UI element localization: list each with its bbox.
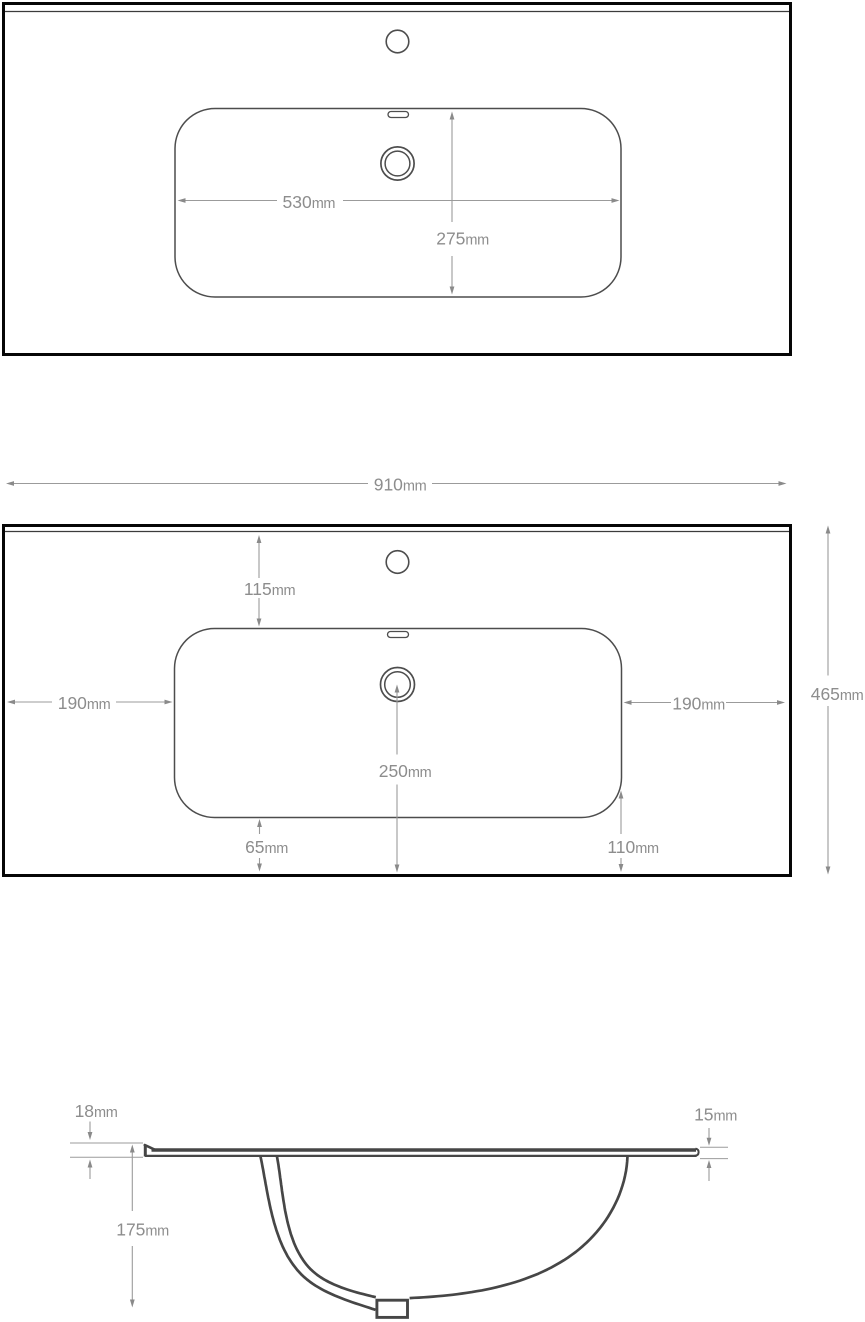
- svg-text:115mm: 115mm: [244, 579, 296, 599]
- svg-text:530mm: 530mm: [283, 192, 336, 212]
- svg-text:190mm: 190mm: [672, 694, 725, 714]
- svg-text:15mm: 15mm: [694, 1105, 737, 1125]
- svg-text:275mm: 275mm: [436, 229, 489, 249]
- svg-text:910mm: 910mm: [374, 475, 427, 495]
- svg-text:190mm: 190mm: [58, 693, 111, 713]
- svg-text:175mm: 175mm: [116, 1220, 169, 1240]
- svg-text:465mm: 465mm: [811, 684, 864, 704]
- svg-text:65mm: 65mm: [245, 837, 288, 857]
- svg-text:110mm: 110mm: [607, 837, 659, 857]
- svg-text:18mm: 18mm: [75, 1101, 118, 1121]
- svg-text:250mm: 250mm: [379, 761, 432, 781]
